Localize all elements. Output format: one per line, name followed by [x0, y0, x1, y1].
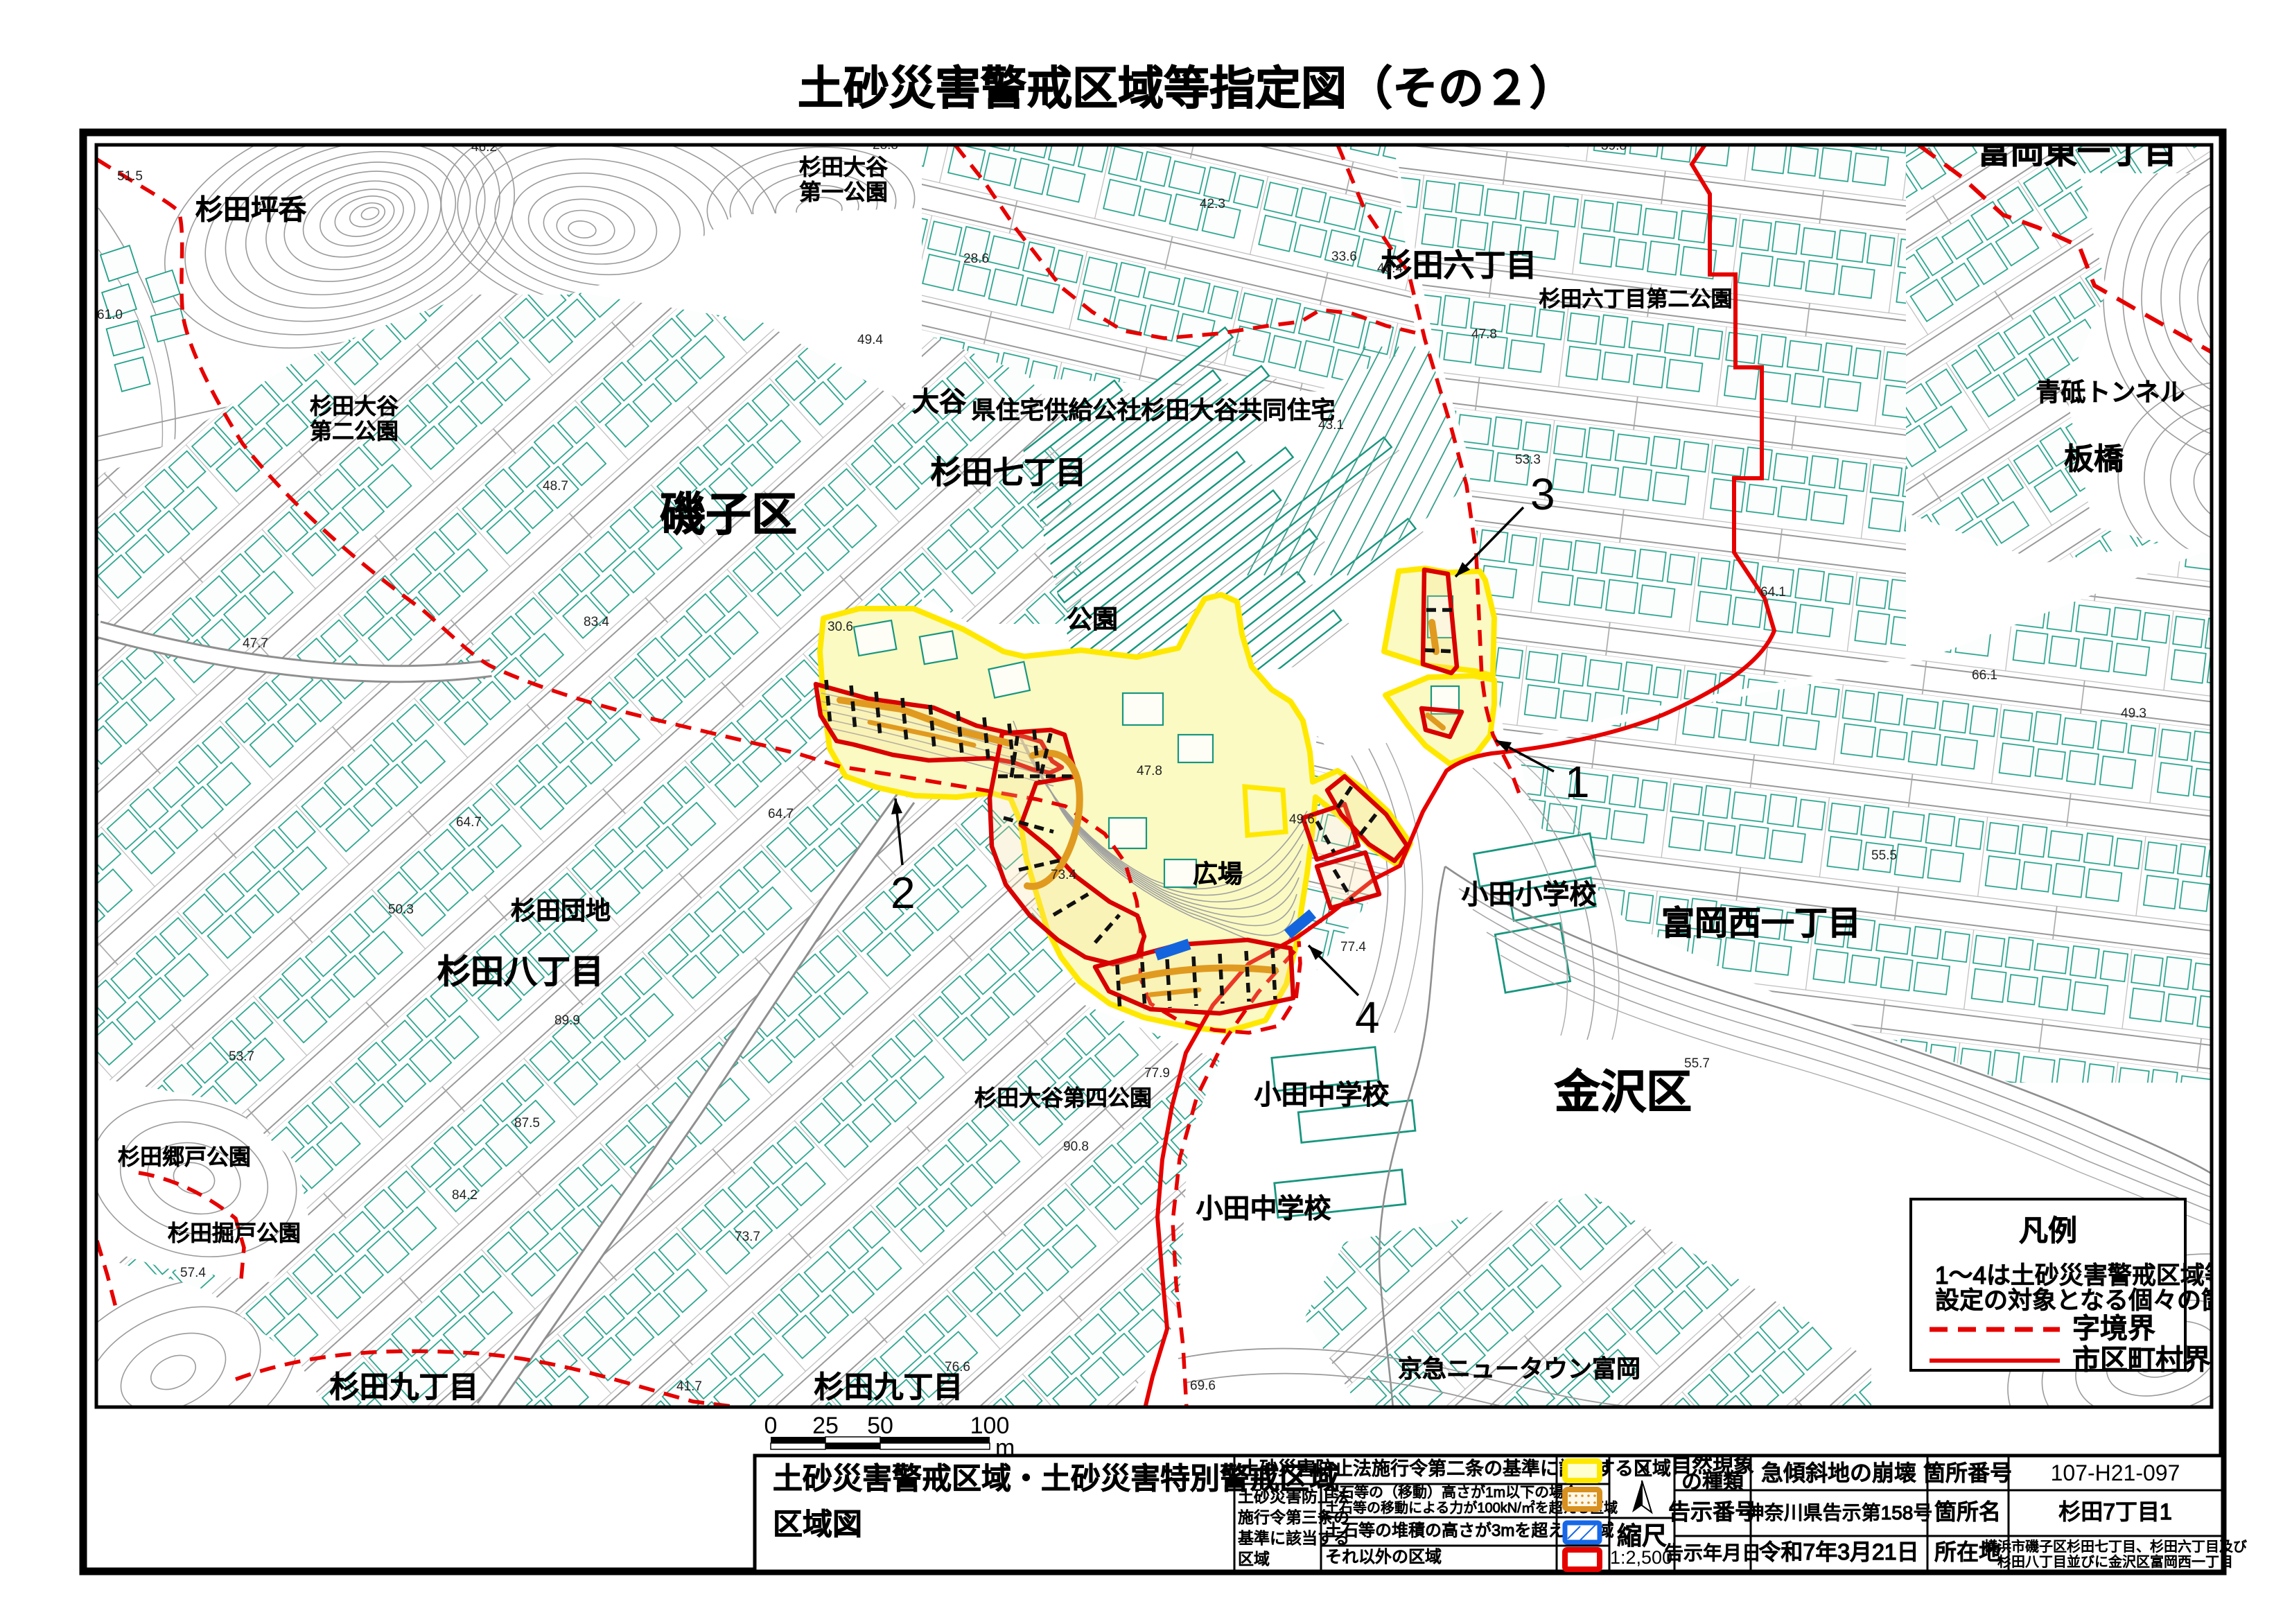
svg-text:49.6: 49.6: [1289, 812, 1315, 827]
svg-text:杉田八丁目: 杉田八丁目: [437, 954, 604, 990]
svg-text:47.8: 47.8: [1471, 327, 1497, 342]
svg-text:30.6: 30.6: [828, 620, 853, 634]
svg-text:73.4: 73.4: [1051, 868, 1076, 882]
svg-text:急傾斜地の崩壊: 急傾斜地の崩壊: [1761, 1460, 1916, 1485]
svg-text:凡例: 凡例: [2019, 1214, 2077, 1247]
svg-text:第一公園: 第一公園: [799, 180, 888, 204]
svg-text:61.0: 61.0: [97, 308, 123, 322]
svg-text:板橋: 板橋: [2064, 443, 2124, 476]
svg-text:57.4: 57.4: [180, 1266, 206, 1280]
svg-text:金沢区: 金沢区: [1555, 1066, 1692, 1117]
svg-text:51.5: 51.5: [117, 169, 143, 184]
svg-text:41.7: 41.7: [676, 1379, 702, 1394]
svg-text:53.3: 53.3: [1515, 453, 1541, 467]
svg-text:大谷: 大谷: [912, 387, 966, 417]
svg-text:73.7: 73.7: [735, 1230, 760, 1244]
svg-text:の種類: の種類: [1681, 1471, 1744, 1494]
svg-text:83.4: 83.4: [584, 615, 609, 629]
svg-text:杉田団地: 杉田団地: [511, 896, 611, 925]
svg-text:53.7: 53.7: [229, 1049, 254, 1064]
svg-text:33.6: 33.6: [1331, 250, 1357, 264]
svg-text:1～4は土砂災害警戒区域等: 1～4は土砂災害警戒区域等: [1935, 1262, 2229, 1289]
svg-text:土石等の（移動）高さが1m以下の場合、: 土石等の（移動）高さが1m以下の場合、: [1325, 1485, 1593, 1501]
svg-text:杉田郷戸公園: 杉田郷戸公園: [118, 1144, 251, 1169]
svg-text:77.4: 77.4: [1340, 940, 1366, 954]
svg-text:2: 2: [891, 868, 916, 918]
svg-text:89.9: 89.9: [554, 1013, 580, 1028]
svg-text:47.8: 47.8: [1137, 764, 1162, 778]
svg-text:市区町村界: 市区町村界: [2072, 1345, 2211, 1375]
svg-text:神奈川県告示第158号: 神奈川県告示第158号: [1745, 1502, 1933, 1523]
svg-text:土砂災害防止法施行令第二条の基準に該当する区域: 土砂災害防止法施行令第二条の基準に該当する区域: [1241, 1458, 1671, 1479]
svg-text:第二公園: 第二公園: [310, 419, 399, 444]
svg-text:69.6: 69.6: [1190, 1379, 1216, 1393]
svg-text:公園: 公園: [1067, 605, 1118, 634]
svg-text:107-H21-097: 107-H21-097: [2051, 1460, 2180, 1485]
svg-text:広場: 広場: [1193, 859, 1243, 888]
svg-text:1:2,500: 1:2,500: [1610, 1547, 1672, 1568]
svg-text:50: 50: [867, 1413, 893, 1439]
svg-text:4: 4: [1355, 993, 1380, 1042]
svg-text:字境界: 字境界: [2072, 1313, 2155, 1344]
svg-text:杉田7丁目1: 杉田7丁目1: [2058, 1499, 2172, 1524]
svg-text:令和7年3月21日: 令和7年3月21日: [1758, 1539, 1918, 1564]
svg-text:県住宅供給公社杉田大谷共同住宅: 県住宅供給公社杉田大谷共同住宅: [971, 397, 1335, 424]
svg-text:杉田六丁目第二公園: 杉田六丁目第二公園: [1539, 287, 1733, 311]
svg-text:富岡西一丁目: 富岡西一丁目: [1661, 905, 1861, 942]
svg-text:箇所名: 箇所名: [1934, 1499, 2001, 1524]
svg-text:小田小学校: 小田小学校: [1461, 880, 1596, 910]
svg-text:55.7: 55.7: [1684, 1056, 1710, 1071]
svg-text:杉田坪呑: 杉田坪呑: [195, 195, 306, 225]
svg-text:それ以外の区域: それ以外の区域: [1325, 1548, 1442, 1566]
svg-text:青砥トンネル: 青砥トンネル: [2036, 378, 2185, 406]
svg-text:区域: 区域: [1238, 1550, 1270, 1568]
svg-text:小田中学校: 小田中学校: [1196, 1194, 1331, 1224]
svg-text:杉田大谷: 杉田大谷: [310, 394, 399, 419]
svg-text:横浜市磯子区杉田七丁目、杉田六丁目及び: 横浜市磯子区杉田七丁目、杉田六丁目及び: [1984, 1539, 2247, 1555]
svg-text:区域図: 区域図: [773, 1508, 862, 1542]
svg-text:48.7: 48.7: [543, 479, 568, 494]
svg-text:76.6: 76.6: [945, 1360, 970, 1374]
svg-text:64.7: 64.7: [456, 815, 482, 830]
svg-text:3: 3: [1530, 469, 1555, 519]
svg-text:磯子区: 磯子区: [660, 489, 797, 540]
svg-text:杉田七丁目: 杉田七丁目: [930, 455, 1086, 490]
svg-text:90.8: 90.8: [1063, 1140, 1089, 1154]
svg-text:50.3: 50.3: [388, 902, 414, 917]
svg-text:42.3: 42.3: [1200, 197, 1225, 211]
svg-text:64.1: 64.1: [1760, 585, 1786, 600]
svg-text:0: 0: [764, 1413, 778, 1439]
svg-text:28.6: 28.6: [963, 252, 989, 266]
svg-text:杉田六丁目: 杉田六丁目: [1381, 247, 1537, 283]
svg-text:N: N: [1634, 1456, 1651, 1482]
svg-text:25: 25: [812, 1413, 839, 1439]
svg-text:京急ニュータウン富岡: 京急ニュータウン富岡: [1398, 1356, 1641, 1383]
svg-text:87.5: 87.5: [514, 1116, 540, 1130]
svg-text:告示年月日: 告示年月日: [1664, 1542, 1761, 1564]
svg-text:84.2: 84.2: [452, 1188, 478, 1203]
svg-text:1: 1: [1565, 757, 1590, 807]
svg-text:杉田八丁目並びに金沢区富岡西一丁目: 杉田八丁目並びに金沢区富岡西一丁目: [1997, 1554, 2233, 1570]
svg-text:49.3: 49.3: [2121, 706, 2146, 721]
svg-text:77.9: 77.9: [1144, 1066, 1170, 1081]
svg-text:66.1: 66.1: [1972, 668, 1997, 683]
svg-text:告示番号: 告示番号: [1668, 1499, 1757, 1524]
svg-text:縮尺: 縮尺: [1617, 1521, 1667, 1550]
svg-text:49.4: 49.4: [857, 333, 883, 347]
svg-text:土砂災害警戒区域等指定図（その２）: 土砂災害警戒区域等指定図（その２）: [798, 62, 1575, 114]
svg-text:杉田掘戸公園: 杉田掘戸公園: [168, 1221, 301, 1246]
svg-text:杉田九丁目: 杉田九丁目: [814, 1371, 963, 1404]
svg-text:設定の対象となる個々の箇所: 設定の対象となる個々の箇所: [1935, 1287, 2250, 1314]
svg-text:杉田大谷第四公園: 杉田大谷第四公園: [974, 1085, 1152, 1110]
svg-text:47.7: 47.7: [243, 636, 268, 651]
svg-text:杉田大谷: 杉田大谷: [799, 155, 888, 180]
svg-text:箇所番号: 箇所番号: [1923, 1460, 2012, 1485]
svg-text:46.4: 46.4: [1377, 261, 1403, 276]
svg-text:小田中学校: 小田中学校: [1254, 1081, 1389, 1110]
svg-text:64.7: 64.7: [768, 807, 794, 821]
svg-text:43.1: 43.1: [1318, 418, 1344, 433]
svg-text:杉田九丁目: 杉田九丁目: [330, 1371, 479, 1404]
svg-text:55.5: 55.5: [1871, 848, 1897, 863]
